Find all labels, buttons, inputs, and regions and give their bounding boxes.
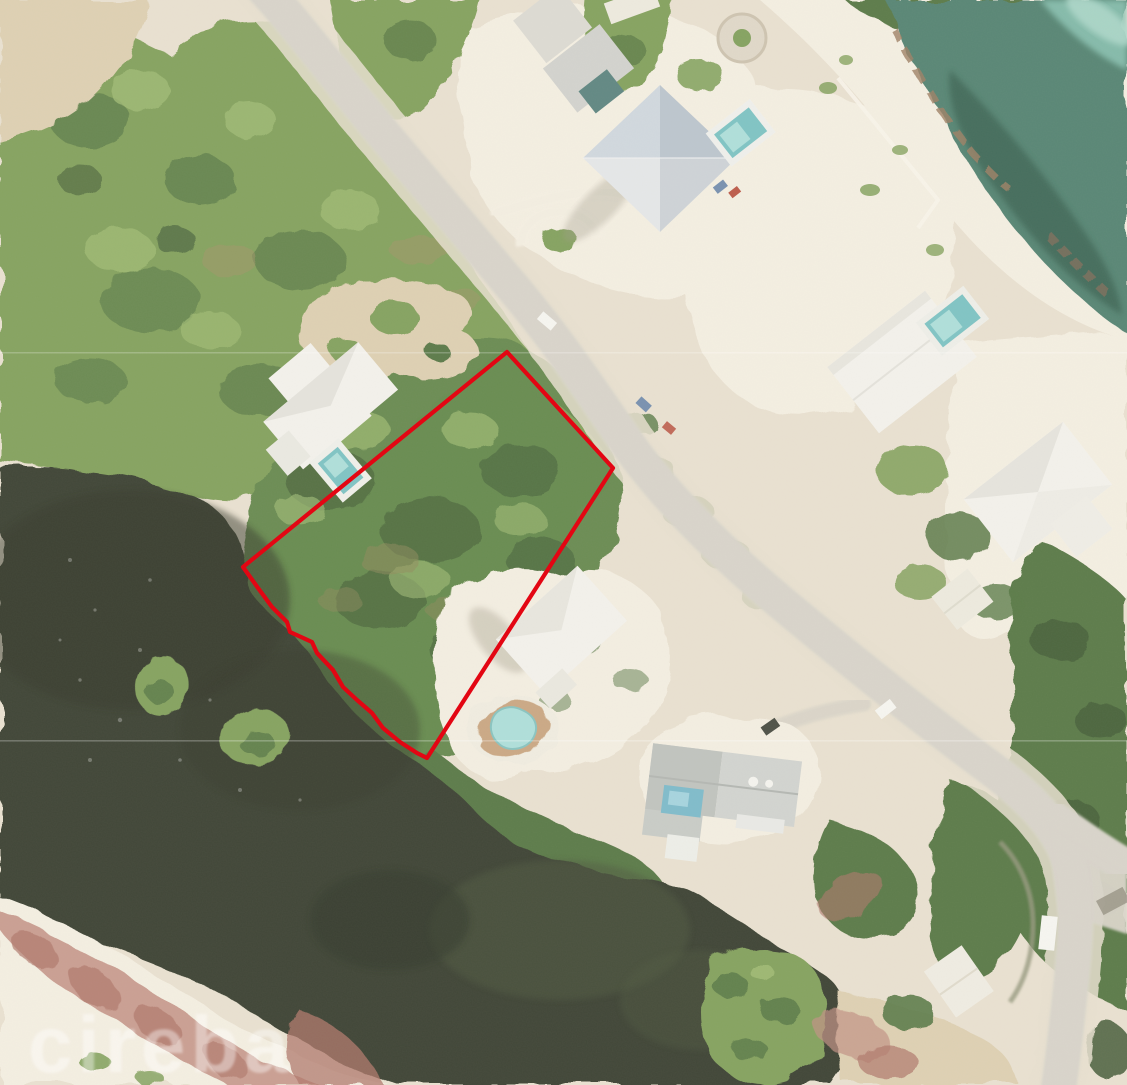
scanline-lower bbox=[0, 740, 1127, 742]
watermark-text: cireba bbox=[28, 1000, 294, 1085]
aerial-photo: cireba bbox=[0, 0, 1127, 1085]
aerial-photo-stage: cireba bbox=[0, 0, 1127, 1085]
scanline-upper bbox=[0, 352, 1127, 354]
